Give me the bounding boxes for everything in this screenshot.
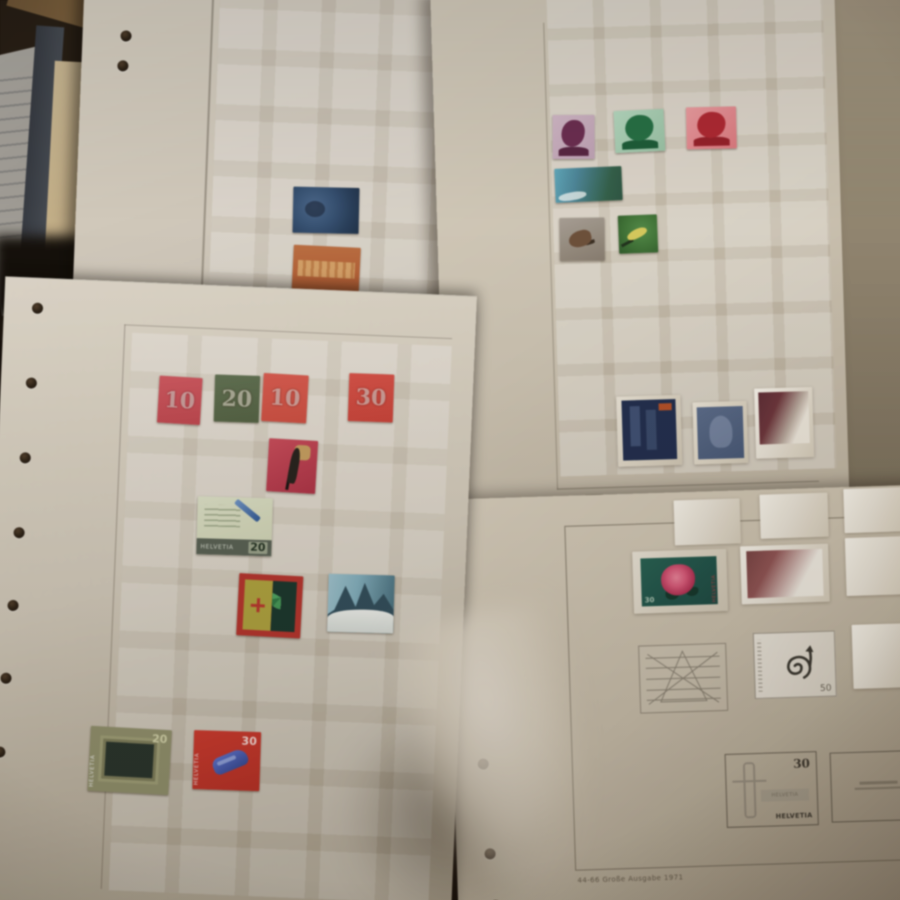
tiny-text-line <box>859 781 897 785</box>
empty-glossy-mount <box>674 498 741 545</box>
rose-flower-icon <box>661 564 696 596</box>
stamp-blue-gray-figure <box>697 406 745 459</box>
stamp-red-glare <box>746 549 823 598</box>
stamp-mountain-landscape <box>554 166 622 203</box>
stadium-field <box>104 742 154 779</box>
stamp-dark-blue-figure <box>621 399 677 461</box>
stamp-mount: 30 HELVETIA <box>632 549 728 614</box>
stamp-whistle-red: HELVETIA 30 <box>192 730 261 791</box>
placeholder-country: HELVETIA <box>761 788 809 802</box>
stamp-value: 10 <box>164 386 196 414</box>
stamp-numeral-10-orange: 10 <box>261 373 309 423</box>
green-fan-panel <box>271 581 297 632</box>
stamp-value: 30 <box>355 384 387 411</box>
stamp-value: 20 <box>221 385 252 412</box>
whistle-icon <box>210 747 250 776</box>
album-page-top-right <box>430 0 850 522</box>
stamp-portrait-magenta <box>553 115 595 159</box>
binder-hole <box>0 673 11 684</box>
placeholder-label: HELVETIA <box>776 811 813 820</box>
page-caption: 44-66 Große Ausgabe 1971 <box>577 873 683 884</box>
stamp-cross-ornament <box>236 573 303 638</box>
stamp-album-photo: 30 HELVETIA <box>0 0 900 900</box>
stamp-value: 30 <box>241 735 257 748</box>
stamp-value: 30 <box>645 596 655 604</box>
stamp-dark-red-glare <box>758 391 810 444</box>
binder-hole <box>26 377 37 388</box>
binder-hole <box>32 303 43 314</box>
placeholder-value: 30 <box>793 756 810 771</box>
stamp-numeral-30-red: 30 <box>348 373 395 423</box>
printed-description-box <box>830 750 900 823</box>
tiny-text-line <box>854 786 900 790</box>
binder-hole <box>117 60 128 71</box>
stamp-orange-building <box>292 245 361 295</box>
stamp-dark-blue <box>293 187 360 234</box>
stamp-portrait-red <box>686 106 737 149</box>
stamp-rose: 30 HELVETIA <box>640 556 717 606</box>
stamp-mount <box>693 401 749 465</box>
binder-hole <box>7 600 18 611</box>
stamp-portrait-green <box>613 109 665 153</box>
letter-text-lines <box>204 504 241 527</box>
stamp-bird-green <box>618 214 658 253</box>
binder-hole <box>120 30 131 41</box>
stamp-country: HELVETIA <box>200 543 233 551</box>
stamp-mount-glossy <box>740 544 830 605</box>
empty-glossy-mount <box>759 493 828 539</box>
geometric-sketch-icon <box>639 644 727 713</box>
stamp-value: 20 <box>152 732 168 746</box>
empty-glossy-mount <box>843 487 900 533</box>
binder-hole <box>0 746 6 757</box>
stamp-country: HELVETIA <box>193 736 201 785</box>
spiral-arrow-icon <box>764 636 826 692</box>
stamp-inscription-band: HELVETIA 20 <box>196 538 271 556</box>
binder-hole <box>20 452 31 463</box>
placeholder-spiral: 50 <box>753 630 837 699</box>
stamp-numeral-10-red: 10 <box>157 376 203 425</box>
stamp-glacier-mountains <box>327 574 395 634</box>
stamp-numeral-20-green: 20 <box>214 375 260 423</box>
stamp-value: 20 <box>248 542 268 555</box>
stamp-letter-writing: HELVETIA 20 <box>196 496 273 556</box>
stamp-stadium-green: HELVETIA 20 <box>87 726 172 795</box>
stamp-value: 10 <box>269 384 301 412</box>
stamp-ducks-brown <box>559 217 605 261</box>
empty-glossy-mount <box>852 623 900 689</box>
placeholder-text-lines <box>757 640 763 692</box>
placeholder-value: 50 <box>820 684 832 694</box>
stamp-country: HELVETIA <box>89 732 98 787</box>
stamp-woodpecker-red <box>266 438 318 494</box>
swiss-cross-panel <box>242 579 273 630</box>
stamp-country: HELVETIA <box>710 560 717 602</box>
stamp-mount <box>616 395 682 467</box>
stamp-mount-glossy <box>754 387 814 459</box>
binder-hole <box>13 527 24 538</box>
empty-glossy-mount <box>845 536 900 596</box>
photo-layers: 30 HELVETIA <box>0 0 900 900</box>
printed-stamp-outline: 30 HELVETIA HELVETIA <box>725 751 819 828</box>
placeholder-geometric <box>638 643 728 714</box>
